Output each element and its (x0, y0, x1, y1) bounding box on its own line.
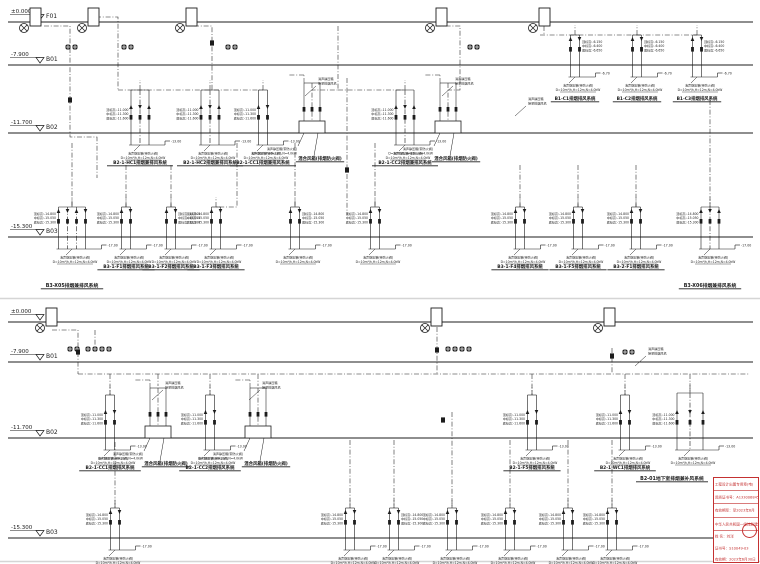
svg-text:-13.00: -13.00 (171, 140, 181, 144)
svg-text:B2-1-HC2排烟兼排风系统: B2-1-HC2排烟兼排风系统 (183, 159, 237, 166)
svg-text:底标高:-15.300: 底标高:-15.300 (539, 520, 561, 525)
svg-text:消声静压箱: 消声静压箱 (455, 76, 470, 81)
svg-text:底标高:-11.600: 底标高:-11.600 (81, 420, 103, 425)
svg-text:消声静压箱(带防火阀): 消声静压箱(带防火阀) (563, 83, 593, 88)
svg-text:底标高:-11.600: 底标高:-11.600 (234, 115, 256, 120)
riser-group: 顶标高:-14.800中标高:-15.050底标高:-15.300-17.00消… (423, 498, 489, 564)
riser-group: 顶标高:-14.800中标高:-15.050底标高:-15.300-17.00消… (321, 498, 387, 564)
leader-note: 消声静压箱接至排烟风机 (152, 380, 184, 400)
leader-note: 消声静压箱接至排烟风机 (305, 76, 337, 96)
svg-text:底标高:-11.600: 底标高:-11.600 (371, 115, 393, 120)
stamp-text: 证书号：S10049-03 (714, 545, 749, 550)
riser-diagram: ±0.000F01-7.900B01-11.700B02-15.300B03顶标… (0, 0, 760, 564)
inline-damper (210, 40, 214, 45)
svg-text:消声静压箱(带防火阀): 消声静压箱(带防火阀) (113, 451, 143, 456)
svg-text:B2-1-CC2排烟排风系统: B2-1-CC2排烟排风系统 (186, 464, 236, 471)
svg-text:消声静压箱: 消声静压箱 (262, 380, 277, 385)
fan-symbol (36, 308, 58, 333)
svg-text:底标高:-15.300: 底标高:-15.300 (607, 219, 629, 224)
svg-text:底标高:-15.300: 底标高:-15.300 (97, 219, 119, 224)
valve-row (467, 44, 480, 50)
svg-text:D=10m³/h,H=12m,N=4.0kW: D=10m³/h,H=12m,N=4.0kW (559, 260, 604, 264)
svg-text:底标高:-15.300: 底标高:-15.300 (481, 520, 503, 525)
svg-text:底标高:-15.300: 底标高:-15.300 (302, 219, 324, 224)
riser-group: 顶标高:-14.800中标高:-15.050底标高:-15.300-17.00消… (607, 197, 673, 270)
riser-group: 顶标高:-14.800中标高:-15.050底标高:-15.300-17.00消… (549, 197, 615, 270)
svg-text:消声静压箱(带防火阀): 消声静压箱(带防火阀) (685, 83, 715, 88)
svg-text:底标高:-11.600: 底标高:-11.600 (503, 420, 525, 425)
svg-text:B3-1-F2排烟排风系统: B3-1-F2排烟排风系统 (148, 263, 194, 270)
svg-text:底标高:-15.300: 底标高:-15.300 (401, 520, 423, 525)
stamp-line: 有效期：2023年6月30日 (714, 554, 758, 564)
svg-text:D=10m³/h,H=12m,N=4.0kW: D=10m³/h,H=12m,N=4.0kW (91, 461, 136, 465)
svg-text:混合风箱(排烟防火阀): 混合风箱(排烟防火阀) (244, 460, 288, 467)
valve-row (622, 349, 635, 355)
svg-text:接至排烟风机: 接至排烟风机 (165, 385, 184, 390)
svg-text:D=10m³/h,H=12m,N=4.0kW: D=10m³/h,H=12m,N=4.0kW (252, 151, 297, 155)
svg-text:B3-2-F1排烟排风系统: B3-2-F1排烟排风系统 (613, 263, 659, 270)
riser-group: 顶标高:-11.000中标高:-11.300底标高:-11.600-13.00消… (176, 80, 251, 166)
svg-text:底标高:-15.300: 底标高:-15.300 (676, 219, 698, 224)
svg-text:底标高:-15.300: 底标高:-15.300 (34, 219, 56, 224)
svg-text:D=10m³/h,H=12m,N=4.0kW: D=10m³/h,H=12m,N=4.0kW (197, 260, 242, 264)
stamp-text: 姓 名：刘洋 (714, 534, 734, 539)
stamp-line: 工程设计出图专用章(电) (714, 478, 758, 491)
svg-text:-6.70: -6.70 (664, 72, 672, 76)
svg-text:-17.00: -17.00 (741, 244, 751, 248)
fan-symbol (176, 8, 198, 33)
svg-text:底标高:-15.300: 底标高:-15.300 (321, 520, 343, 525)
svg-text:消声静压箱: 消声静压箱 (165, 380, 180, 385)
valve-row (445, 346, 472, 352)
svg-text:D=10m³/h,H=12m,N=4.0kW: D=10m³/h,H=12m,N=4.0kW (678, 88, 723, 92)
riser-group: 顶标高:-6.150中标高:-6.400底标高:-6.650-6.70消声静压箱… (613, 25, 672, 102)
svg-text:底标高:-15.300: 底标高:-15.300 (491, 219, 513, 224)
svg-text:B2-1-CC2排烟兼排风系统: B2-1-CC2排烟兼排风系统 (378, 159, 432, 166)
fan-symbol (529, 8, 551, 33)
svg-text:-13.00: -13.00 (241, 140, 251, 144)
svg-text:-7.900: -7.900 (11, 349, 29, 355)
svg-text:D=10m³/h,H=12m,N=4.0kW: D=10m³/h,H=12m,N=4.0kW (107, 260, 152, 264)
stamp-text: 资质证书号：A133006845 (714, 495, 758, 500)
svg-text:-17.00: -17.00 (402, 244, 412, 248)
svg-text:B2-1-WC1排烟排风系统: B2-1-WC1排烟排风系统 (600, 464, 651, 471)
svg-text:消声静压箱(带防火阀): 消声静压箱(带防火阀) (283, 255, 313, 260)
stamp-text: 有效期：2023年6月30日 (714, 557, 756, 562)
svg-text:底标高:-11.600: 底标高:-11.600 (181, 420, 203, 425)
svg-text:接至排烟风机: 接至排烟风机 (262, 385, 281, 390)
riser-group: 顶标高:-11.000中标高:-11.300底标高:-11.600-13.00消… (106, 80, 181, 166)
riser-group: 顶标高:-6.150中标高:-6.400底标高:-6.650-6.70消声静压箱… (551, 25, 610, 102)
svg-text:底标高:-15.300: 底标高:-15.300 (549, 219, 571, 224)
riser-group: 顶标高:-14.800中标高:-15.050底标高:-15.300-17.00消… (491, 197, 557, 270)
svg-text:消声静压箱: 消声静压箱 (648, 346, 663, 351)
riser-group: 顶标高:-6.150中标高:-6.400底标高:-6.650-6.70消声静压箱… (673, 25, 732, 102)
svg-text:底标高:-15.300: 底标高:-15.300 (86, 520, 108, 525)
svg-text:消声静压箱(带防火阀): 消声静压箱(带防火阀) (363, 255, 393, 260)
fan-symbol (78, 8, 100, 33)
svg-text:底标高:-15.300: 底标高:-15.300 (187, 219, 209, 224)
svg-text:-17.00: -17.00 (108, 244, 118, 248)
svg-text:-7.900: -7.900 (11, 52, 29, 58)
valve-row (85, 346, 112, 352)
svg-text:-13.00: -13.00 (290, 140, 300, 144)
level-line-B03: -15.300B03 (8, 224, 753, 237)
svg-text:-17.00: -17.00 (142, 545, 152, 549)
svg-text:B02: B02 (46, 124, 58, 131)
svg-text:消声静压箱: 消声静压箱 (318, 76, 333, 81)
svg-text:消声静压箱(带防火阀): 消声静压箱(带防火阀) (213, 451, 243, 456)
riser-group: 顶标高:-11.000中标高:-11.300底标高:-11.600-13.00消… (594, 385, 662, 471)
svg-text:-17.00: -17.00 (322, 244, 332, 248)
svg-text:消声静压箱(带防火阀): 消声静压箱(带防火阀) (678, 456, 708, 461)
stamp-line: 证书号：S10049-03 (714, 542, 758, 553)
svg-text:D=10m³/h,H=12m,N=4.0kW: D=10m³/h,H=12m,N=4.0kW (356, 260, 401, 264)
svg-text:消声静压箱(带防火阀): 消声静压箱(带防火阀) (114, 255, 144, 260)
svg-text:B2-01地下室排烟兼补风系统: B2-01地下室排烟兼补风系统 (640, 475, 704, 482)
svg-text:混合风箱(排烟防火阀): 混合风箱(排烟防火阀) (298, 155, 342, 162)
svg-text:底标高:-11.600: 底标高:-11.600 (176, 115, 198, 120)
riser-group: 顶标高:-14.800中标高:-15.050底标高:-15.300-17.00消… (481, 498, 547, 564)
svg-text:D=10m³/h,H=12m,N=4.0kW: D=10m³/h,H=12m,N=4.0kW (198, 456, 243, 460)
svg-text:消声静压箱: 消声静压箱 (528, 96, 543, 101)
riser-group: 顶标高:-14.800中标高:-15.050底标高:-15.300-17.00消… (539, 498, 605, 564)
svg-text:底标高:-15.300: 底标高:-15.300 (423, 520, 445, 525)
svg-text:B02: B02 (46, 429, 58, 436)
svg-text:消声静压箱(带防火阀): 消声静压箱(带防火阀) (556, 556, 586, 561)
stamp-text: 有效期至：至2023年6月 (714, 508, 755, 513)
riser-group: 顶标高:-14.800中标高:-15.050底标高:-15.300-17.00消… (346, 197, 412, 264)
approval-stamp: 工程设计出图专用章(电) 资质证书号：A133006845 有效期至：至2023… (713, 477, 759, 563)
svg-text:F01: F01 (46, 13, 57, 20)
svg-text:消声静压箱(带防火阀): 消声静压箱(带防火阀) (600, 556, 630, 561)
svg-text:D=10m³/h,H=12m,N=4.0kW: D=10m³/h,H=12m,N=4.0kW (606, 461, 651, 465)
svg-text:D=10m³/h,H=12m,N=4.0kW: D=10m³/h,H=12m,N=4.0kW (152, 260, 197, 264)
riser-group: 顶标高:-14.800中标高:-15.050底标高:-15.300-17.00消… (86, 498, 152, 564)
svg-text:底标高:-15.300: 底标高:-15.300 (346, 219, 368, 224)
svg-text:B3-1-F1排烟排风系统: B3-1-F1排烟排风系统 (103, 263, 149, 270)
svg-text:±0.000: ±0.000 (11, 9, 32, 15)
svg-text:B2-1-HC1排烟兼排风系统: B2-1-HC1排烟兼排风系统 (113, 159, 167, 166)
svg-text:-13.00: -13.00 (436, 140, 446, 144)
riser-group: 顶标高:-11.000中标高:-11.300底标高:-11.600-13.00消… (636, 383, 735, 482)
svg-text:-17.00: -17.00 (377, 545, 387, 549)
svg-text:D=10m³/h,H=12m,N=4.0kW: D=10m³/h,H=12m,N=4.0kW (121, 156, 166, 160)
stamp-text: 工程设计出图专用章(电) (714, 482, 753, 487)
riser-group: 顶标高:-11.000中标高:-11.300底标高:-11.600-13.00消… (503, 385, 569, 471)
svg-text:D=10m³/h,H=12m,N=4.0kW: D=10m³/h,H=12m,N=4.0kW (501, 260, 546, 264)
svg-text:-17.00: -17.00 (595, 545, 605, 549)
riser-group: 顶标高:-14.800中标高:-15.050底标高:-15.300-17.00消… (187, 197, 253, 270)
svg-text:底标高:-6.650: 底标高:-6.650 (704, 47, 724, 52)
svg-text:D=10m³/h,H=12m,N=4.0kW: D=10m³/h,H=12m,N=4.0kW (276, 260, 321, 264)
svg-text:B01: B01 (46, 353, 58, 360)
level-line-B02: -11.700B02 (8, 120, 753, 133)
stamp-line: 有效期至：至2023年6月 (714, 504, 758, 517)
svg-text:B1-C3排烟排风系统: B1-C3排烟排风系统 (677, 95, 718, 102)
svg-text:接至排烟风机: 接至排烟风机 (318, 81, 337, 86)
svg-text:B3-1-F5排烟排风系统: B3-1-F5排烟排风系统 (555, 263, 601, 270)
svg-text:B3-X05排烟兼排风系统: B3-X05排烟兼排风系统 (46, 282, 99, 289)
inline-damper (610, 353, 614, 358)
inline-damper (68, 97, 72, 102)
svg-text:D=10m³/h,H=12m,N=4.0kW: D=10m³/h,H=12m,N=4.0kW (671, 461, 716, 465)
svg-text:D=10m³/h,H=12m,N=4.0kW: D=10m³/h,H=12m,N=4.0kW (386, 156, 431, 160)
svg-text:-11.700: -11.700 (11, 120, 33, 126)
svg-text:-11.700: -11.700 (11, 425, 33, 431)
svg-text:接至排烟风机: 接至排烟风机 (528, 101, 547, 106)
svg-text:±0.000: ±0.000 (11, 309, 32, 315)
svg-text:混合风箱(排烟防火阀): 混合风箱(排烟防火阀) (434, 155, 478, 162)
svg-text:B1-C2排烟排风系统: B1-C2排烟排风系统 (617, 95, 658, 102)
svg-text:B3-X06排烟兼排风系统: B3-X06排烟兼排风系统 (684, 282, 737, 289)
seal-circle-icon (742, 523, 757, 538)
leader-note: 消声静压箱接至排烟风机 (515, 96, 547, 116)
inline-damper (441, 417, 445, 422)
drawing-canvas: ±0.000F01-7.900B01-11.700B02-15.300B03顶标… (0, 0, 760, 564)
svg-text:-6.70: -6.70 (602, 72, 610, 76)
valve-row (121, 44, 134, 50)
svg-text:底标高:-6.650: 底标高:-6.650 (644, 47, 664, 52)
svg-text:消声静压箱(带防火阀): 消声静压箱(带防火阀) (103, 556, 133, 561)
svg-text:底标高:-6.650: 底标高:-6.650 (582, 47, 602, 52)
svg-text:D=10m³/h,H=12m,N=4.0kW: D=10m³/h,H=12m,N=4.0kW (691, 260, 736, 264)
svg-text:消声静压箱(带防火阀): 消声静压箱(带防火阀) (698, 255, 728, 260)
svg-text:消声静压箱(带防火阀): 消声静压箱(带防火阀) (508, 255, 538, 260)
svg-text:-13.00: -13.00 (725, 445, 735, 449)
svg-text:消声静压箱(带防火阀): 消声静压箱(带防火阀) (520, 456, 550, 461)
svg-text:B2-1-F5排烟排风系统: B2-1-F5排烟排风系统 (509, 464, 555, 471)
svg-text:-17.00: -17.00 (547, 244, 557, 248)
svg-text:D=10m³/h,H=12m,N=4.0kW: D=10m³/h,H=12m,N=4.0kW (98, 456, 143, 460)
svg-text:-6.70: -6.70 (724, 72, 732, 76)
equipment-box: 消声静压箱(带防火阀)D=10m³/h,H=12m,N=4.0kW混合风箱(排烟… (388, 75, 480, 162)
equipment-box: 消声静压箱(带防火阀)D=10m³/h,H=12m,N=4.0kW混合风箱(排烟… (252, 75, 344, 162)
svg-text:底标高:-15.300: 底标高:-15.300 (583, 520, 605, 525)
fan-symbol (426, 8, 448, 33)
riser-group: 顶标高:-14.800中标高:-15.050底标高:-15.300-17.00消… (583, 498, 649, 564)
riser-group: 顶标高:-14.800中标高:-15.050底标高:-15.300-17.00消… (375, 498, 431, 564)
svg-text:-15.300: -15.300 (11, 224, 33, 230)
svg-text:D=10m³/h,H=12m,N=4.0kW: D=10m³/h,H=12m,N=4.0kW (513, 461, 558, 465)
equipment-box: 消声静压箱(带防火阀)D=10m³/h,H=12m,N=4.0kW混合风箱(排烟… (198, 380, 290, 467)
riser-group: 顶标高:-14.800中标高:-15.050底标高:-15.300-17.00消… (34, 197, 118, 289)
svg-text:-17.00: -17.00 (605, 244, 615, 248)
leader-note: 消声静压箱接至排烟风机 (249, 380, 281, 400)
svg-text:消声静压箱(带防火阀): 消声静压箱(带防火阀) (198, 151, 228, 156)
svg-text:D=10m³/h,H=12m,N=4.0kW: D=10m³/h,H=12m,N=4.0kW (191, 461, 236, 465)
svg-text:底标高:-11.600: 底标高:-11.600 (596, 420, 618, 425)
svg-text:消声静压箱(带防火阀): 消声静压箱(带防火阀) (159, 255, 189, 260)
svg-text:消声静压箱(带防火阀): 消声静压箱(带防火阀) (128, 151, 158, 156)
svg-text:消声静压箱(带防火阀): 消声静压箱(带防火阀) (204, 255, 234, 260)
svg-text:-17.00: -17.00 (153, 244, 163, 248)
level-line-F01: ±0.000F01 (8, 9, 753, 22)
svg-text:-17.00: -17.00 (663, 244, 673, 248)
svg-text:-17.00: -17.00 (537, 545, 547, 549)
svg-text:底标高:-11.600: 底标高:-11.600 (652, 420, 674, 425)
svg-text:消声静压箱(带防火阀): 消声静压箱(带防火阀) (625, 83, 655, 88)
svg-text:B2-1-CC1排烟排风系统: B2-1-CC1排烟排风系统 (86, 464, 136, 471)
inline-damper (435, 347, 439, 352)
level-line-F01: ±0.000F01 (8, 309, 753, 322)
level-line-B02: -11.700B02 (8, 425, 753, 438)
svg-text:消声静压箱(带防火阀): 消声静压箱(带防火阀) (60, 255, 90, 260)
leader-note: 消声静压箱接至排烟风机 (442, 76, 474, 96)
svg-text:消声静压箱(带防火阀): 消声静压箱(带防火阀) (382, 556, 412, 561)
riser-group: 顶标高:-14.800中标高:-15.050底标高:-15.300-17.00消… (276, 197, 332, 264)
svg-text:D=10m³/h,H=12m,N=4.0kW: D=10m³/h,H=12m,N=4.0kW (244, 156, 289, 160)
svg-text:B1-C1排烟排风系统: B1-C1排烟排风系统 (555, 95, 596, 102)
svg-text:D=10m³/h,H=12m,N=4.0kW: D=10m³/h,H=12m,N=4.0kW (556, 88, 601, 92)
svg-text:消声静压箱(带防火阀): 消声静压箱(带防火阀) (267, 146, 297, 151)
valve-row (225, 44, 238, 50)
svg-text:B01: B01 (46, 56, 58, 63)
svg-text:-13.00: -13.00 (652, 445, 662, 449)
svg-text:B03: B03 (46, 529, 58, 536)
svg-text:混合风箱(排烟防火阀): 混合风箱(排烟防火阀) (144, 460, 188, 467)
svg-text:B3-1-F4排烟排风系统: B3-1-F4排烟排风系统 (497, 263, 543, 270)
svg-text:D=10m³/h,H=12m,N=4.0kW: D=10m³/h,H=12m,N=4.0kW (388, 151, 433, 155)
svg-text:B2-1-CC1排烟兼排风系统: B2-1-CC1排烟兼排风系统 (236, 159, 290, 166)
svg-text:消声静压箱(带防火阀): 消声静压箱(带防火阀) (624, 255, 654, 260)
stamp-line: 资质证书号：A133006845 (714, 491, 758, 504)
svg-text:消声静压箱(带防火阀): 消声静压箱(带防火阀) (498, 556, 528, 561)
inline-damper (345, 167, 349, 172)
leader-note: 消声静压箱接至排烟风机 (635, 346, 667, 366)
inline-damper (76, 349, 80, 354)
svg-text:消声静压箱(带防火阀): 消声静压箱(带防火阀) (566, 255, 596, 260)
svg-text:-17.00: -17.00 (479, 545, 489, 549)
svg-text:-17.00: -17.00 (243, 244, 253, 248)
svg-text:-15.300: -15.300 (11, 525, 33, 531)
fan-symbol (421, 308, 443, 333)
riser-group: 顶标高:-14.800中标高:-15.050底标高:-15.300-17.00消… (676, 197, 751, 289)
equipment-box: 消声静压箱(带防火阀)D=10m³/h,H=12m,N=4.0kW混合风箱(排烟… (98, 380, 190, 467)
fan-symbol (594, 308, 616, 333)
svg-text:-17.00: -17.00 (421, 545, 431, 549)
svg-text:消声静压箱(带防火阀): 消声静压箱(带防火阀) (403, 146, 433, 151)
svg-text:D=10m³/h,H=12m,N=4.0kW: D=10m³/h,H=12m,N=4.0kW (618, 88, 663, 92)
svg-text:-17.00: -17.00 (198, 244, 208, 248)
svg-text:B3-1-F3排烟排风系统: B3-1-F3排烟排风系统 (193, 263, 239, 270)
svg-text:底标高:-11.600: 底标高:-11.600 (106, 115, 128, 120)
svg-text:D=10m³/h,H=12m,N=4.0kW: D=10m³/h,H=12m,N=4.0kW (617, 260, 662, 264)
svg-text:接至排烟风机: 接至排烟风机 (648, 351, 667, 356)
svg-text:消声静压箱(带防火阀): 消声静压箱(带防火阀) (338, 556, 368, 561)
svg-text:-13.00: -13.00 (559, 445, 569, 449)
svg-text:D=10m³/h,H=12m,N=4.0kW: D=10m³/h,H=12m,N=4.0kW (53, 260, 98, 264)
svg-text:接至排烟风机: 接至排烟风机 (455, 81, 474, 86)
svg-text:-17.00: -17.00 (639, 545, 649, 549)
valve-row (65, 44, 78, 50)
svg-text:消声静压箱(带防火阀): 消声静压箱(带防火阀) (613, 456, 643, 461)
svg-text:D=10m³/h,H=12m,N=4.0kW: D=10m³/h,H=12m,N=4.0kW (191, 156, 236, 160)
svg-text:B03: B03 (46, 228, 58, 235)
svg-text:消声静压箱(带防火阀): 消声静压箱(带防火阀) (440, 556, 470, 561)
